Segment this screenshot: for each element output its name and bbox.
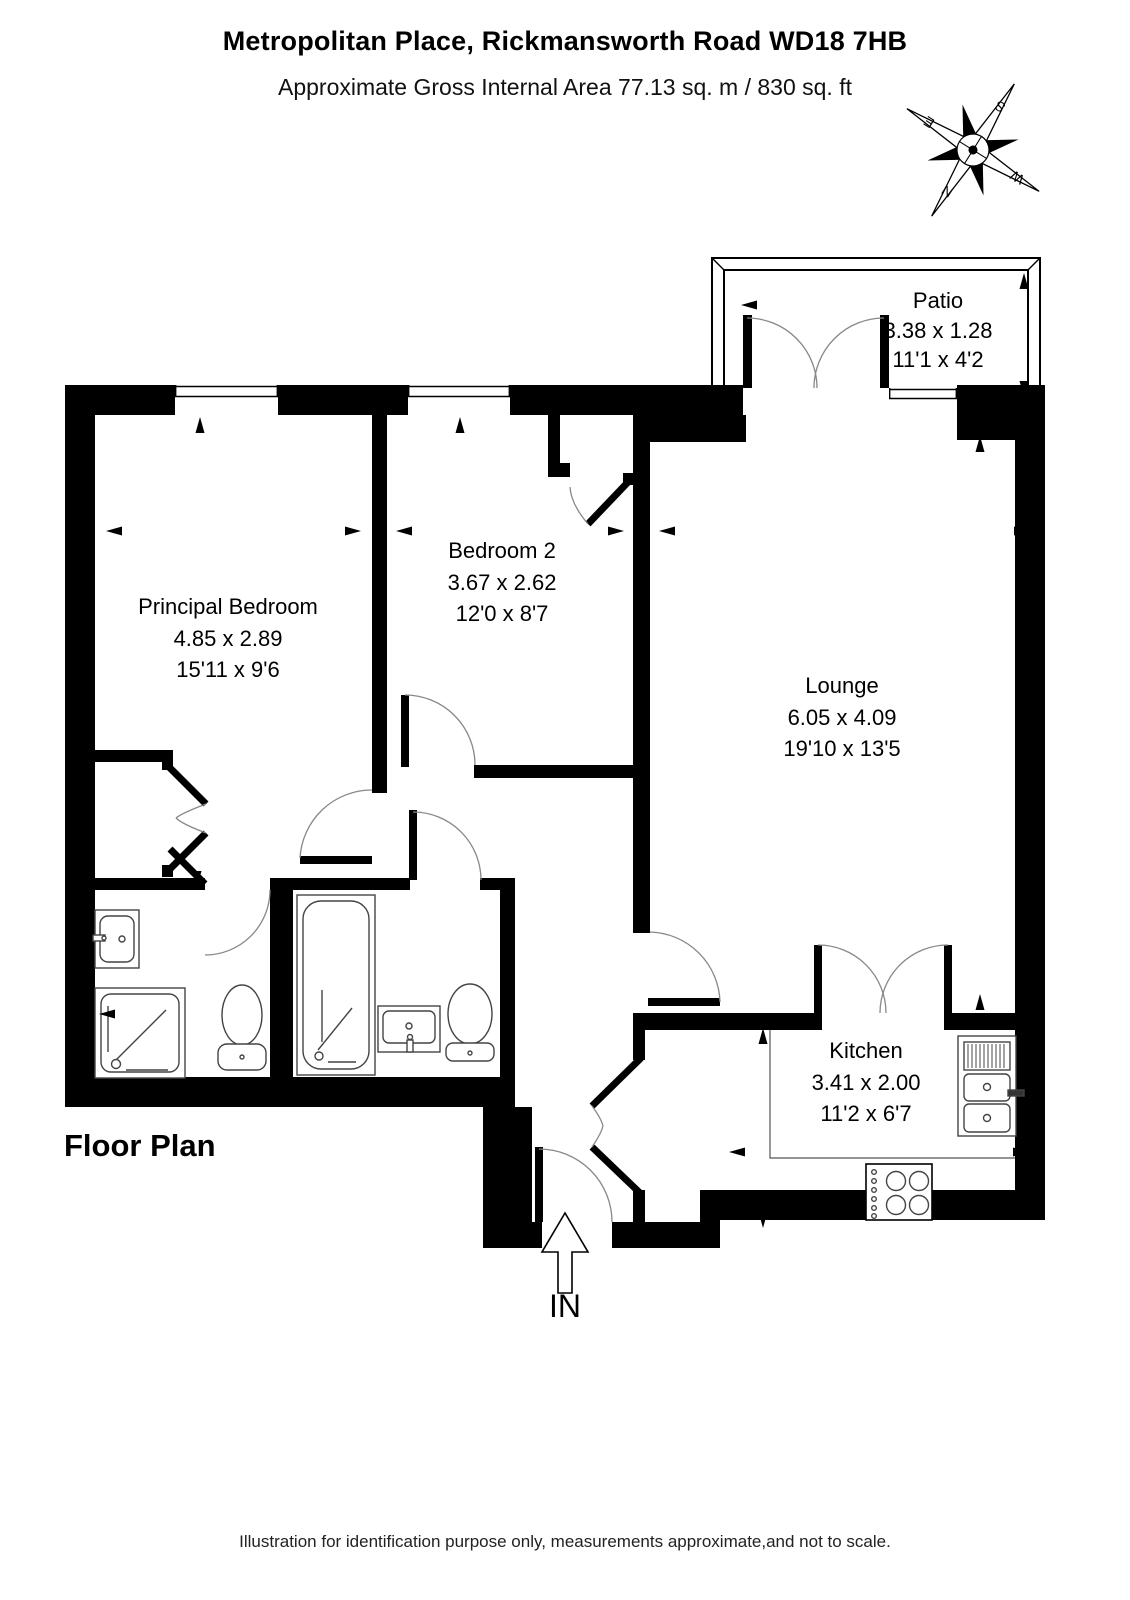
bathroom-toilet — [446, 984, 494, 1061]
svg-text:6.05 x 4.09: 6.05 x 4.09 — [788, 705, 897, 730]
svg-text:11'1 x 4'2: 11'1 x 4'2 — [892, 347, 983, 372]
svg-text:4.85 x 2.89: 4.85 x 2.89 — [174, 626, 283, 651]
svg-text:Patio: Patio — [913, 288, 963, 313]
bathroom-basin — [378, 1006, 440, 1052]
principal-bedroom-window — [175, 385, 278, 415]
kitchen-sink — [958, 1036, 1024, 1136]
svg-text:Lounge: Lounge — [805, 673, 878, 698]
room-label-principal-bedroom: Principal Bedroom 4.85 x 2.89 15'11 x 9'… — [138, 594, 318, 682]
room-label-kitchen: Kitchen 3.41 x 2.00 11'2 x 6'7 — [812, 1038, 921, 1126]
svg-text:11'2 x 6'7: 11'2 x 6'7 — [820, 1101, 911, 1126]
svg-text:Principal Bedroom: Principal Bedroom — [138, 594, 318, 619]
ensuite-basin — [93, 910, 139, 968]
bathroom-bath — [297, 895, 375, 1075]
svg-text:Kitchen: Kitchen — [829, 1038, 902, 1063]
floor-plan-label: Floor Plan — [64, 1128, 216, 1164]
svg-text:12'0 x 8'7: 12'0 x 8'7 — [456, 601, 549, 626]
lounge-window — [889, 388, 957, 415]
svg-text:3.67 x 2.62: 3.67 x 2.62 — [448, 570, 557, 595]
disclaimer-text: Illustration for identification purpose … — [0, 1532, 1130, 1552]
floorplan-page: Metropolitan Place, Rickmansworth Road W… — [0, 0, 1130, 1600]
ensuite-toilet — [218, 985, 266, 1070]
entrance-in-label: IN — [505, 1288, 625, 1325]
svg-text:3.38 x 1.28: 3.38 x 1.28 — [884, 318, 993, 343]
svg-text:15'11 x 9'6: 15'11 x 9'6 — [176, 657, 279, 682]
svg-text:19'10 x 13'5: 19'10 x 13'5 — [783, 736, 900, 761]
room-label-patio: Patio 3.38 x 1.28 11'1 x 4'2 — [884, 288, 993, 372]
room-label-bedroom2: Bedroom 2 3.67 x 2.62 12'0 x 8'7 — [448, 538, 557, 626]
kitchen-hob — [866, 1164, 932, 1220]
svg-text:3.41 x 2.00: 3.41 x 2.00 — [812, 1070, 921, 1095]
svg-text:Bedroom 2: Bedroom 2 — [448, 538, 556, 563]
ensuite-shower — [95, 988, 185, 1078]
compass-icon: N S E W — [866, 43, 1081, 258]
entrance-arrow-icon — [542, 1213, 588, 1293]
bedroom2-window — [408, 385, 510, 415]
room-label-lounge: Lounge 6.05 x 4.09 19'10 x 13'5 — [783, 673, 900, 761]
floorplan-drawing: N S E W Patio 3.38 x 1.28 11'1 x 4'2 Pri… — [0, 0, 1130, 1600]
